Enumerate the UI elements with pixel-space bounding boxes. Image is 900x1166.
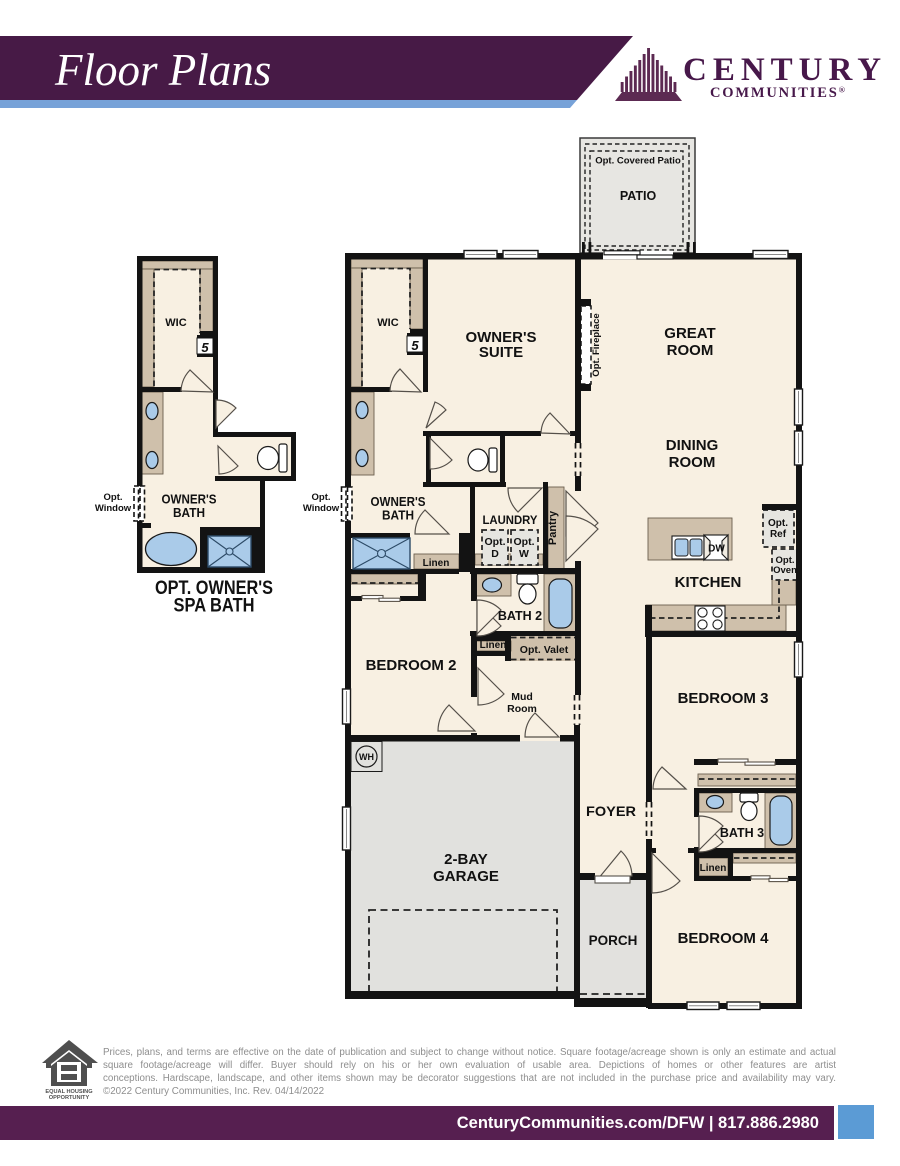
svg-text:2-BAY: 2-BAY — [444, 851, 488, 868]
svg-text:BATH 3: BATH 3 — [720, 826, 764, 840]
svg-text:FOYER: FOYER — [586, 804, 636, 819]
svg-text:OPPORTUNITY: OPPORTUNITY — [49, 1095, 90, 1100]
svg-text:Pantry: Pantry — [547, 510, 559, 545]
svg-text:D: D — [491, 548, 499, 560]
svg-text:PORCH: PORCH — [589, 933, 638, 948]
svg-text:Linen: Linen — [480, 640, 507, 651]
svg-text:5: 5 — [201, 340, 209, 355]
svg-text:WIC: WIC — [377, 317, 398, 329]
svg-text:BATH: BATH — [382, 508, 414, 523]
svg-text:WIC: WIC — [165, 317, 186, 329]
svg-text:Opt.: Opt. — [312, 492, 331, 503]
svg-text:Floor Plans: Floor Plans — [54, 45, 271, 95]
svg-text:BATH 2: BATH 2 — [498, 609, 542, 623]
svg-text:PATIO: PATIO — [620, 189, 657, 203]
svg-text:GARAGE: GARAGE — [433, 868, 499, 885]
svg-text:DINING: DINING — [666, 437, 719, 454]
svg-text:BEDROOM 2: BEDROOM 2 — [366, 657, 457, 674]
svg-text:ROOM: ROOM — [669, 454, 716, 471]
svg-text:BEDROOM 4: BEDROOM 4 — [678, 930, 770, 947]
svg-text:Mud: Mud — [511, 691, 533, 703]
svg-text:LAUNDRY: LAUNDRY — [483, 515, 538, 527]
svg-text:ROOM: ROOM — [667, 342, 714, 359]
svg-text:Opt. Covered Patio: Opt. Covered Patio — [595, 156, 681, 167]
svg-text:COMMUNITIES®: COMMUNITIES® — [710, 85, 847, 102]
svg-text:Ref: Ref — [770, 529, 787, 540]
svg-text:Opt.: Opt. — [104, 492, 123, 503]
svg-text:Linen: Linen — [700, 863, 727, 874]
svg-text:Opt. Fireplace: Opt. Fireplace — [591, 313, 602, 376]
svg-text:Room: Room — [507, 703, 537, 715]
svg-text:GREAT: GREAT — [664, 325, 715, 342]
svg-text:SPA BATH: SPA BATH — [174, 595, 255, 617]
svg-text:Opt.: Opt. — [514, 536, 535, 548]
svg-text:KITCHEN: KITCHEN — [675, 574, 742, 591]
svg-text:CENTURY: CENTURY — [683, 52, 887, 88]
svg-text:Opt. Valet: Opt. Valet — [520, 644, 569, 656]
svg-text:Window: Window — [95, 503, 132, 514]
svg-text:WH: WH — [359, 752, 374, 762]
svg-text:5: 5 — [411, 338, 419, 353]
svg-text:Oven: Oven — [773, 565, 797, 576]
svg-text:BEDROOM 3: BEDROOM 3 — [678, 690, 769, 707]
svg-text:Opt.: Opt. — [768, 518, 788, 529]
svg-text:Linen: Linen — [423, 558, 450, 569]
svg-text:SUITE: SUITE — [479, 344, 523, 361]
svg-text:Opt.: Opt. — [485, 536, 506, 548]
svg-text:W: W — [519, 548, 529, 560]
svg-text:DW: DW — [708, 544, 725, 555]
svg-text:BATH: BATH — [173, 505, 205, 520]
svg-text:Window: Window — [303, 503, 340, 514]
